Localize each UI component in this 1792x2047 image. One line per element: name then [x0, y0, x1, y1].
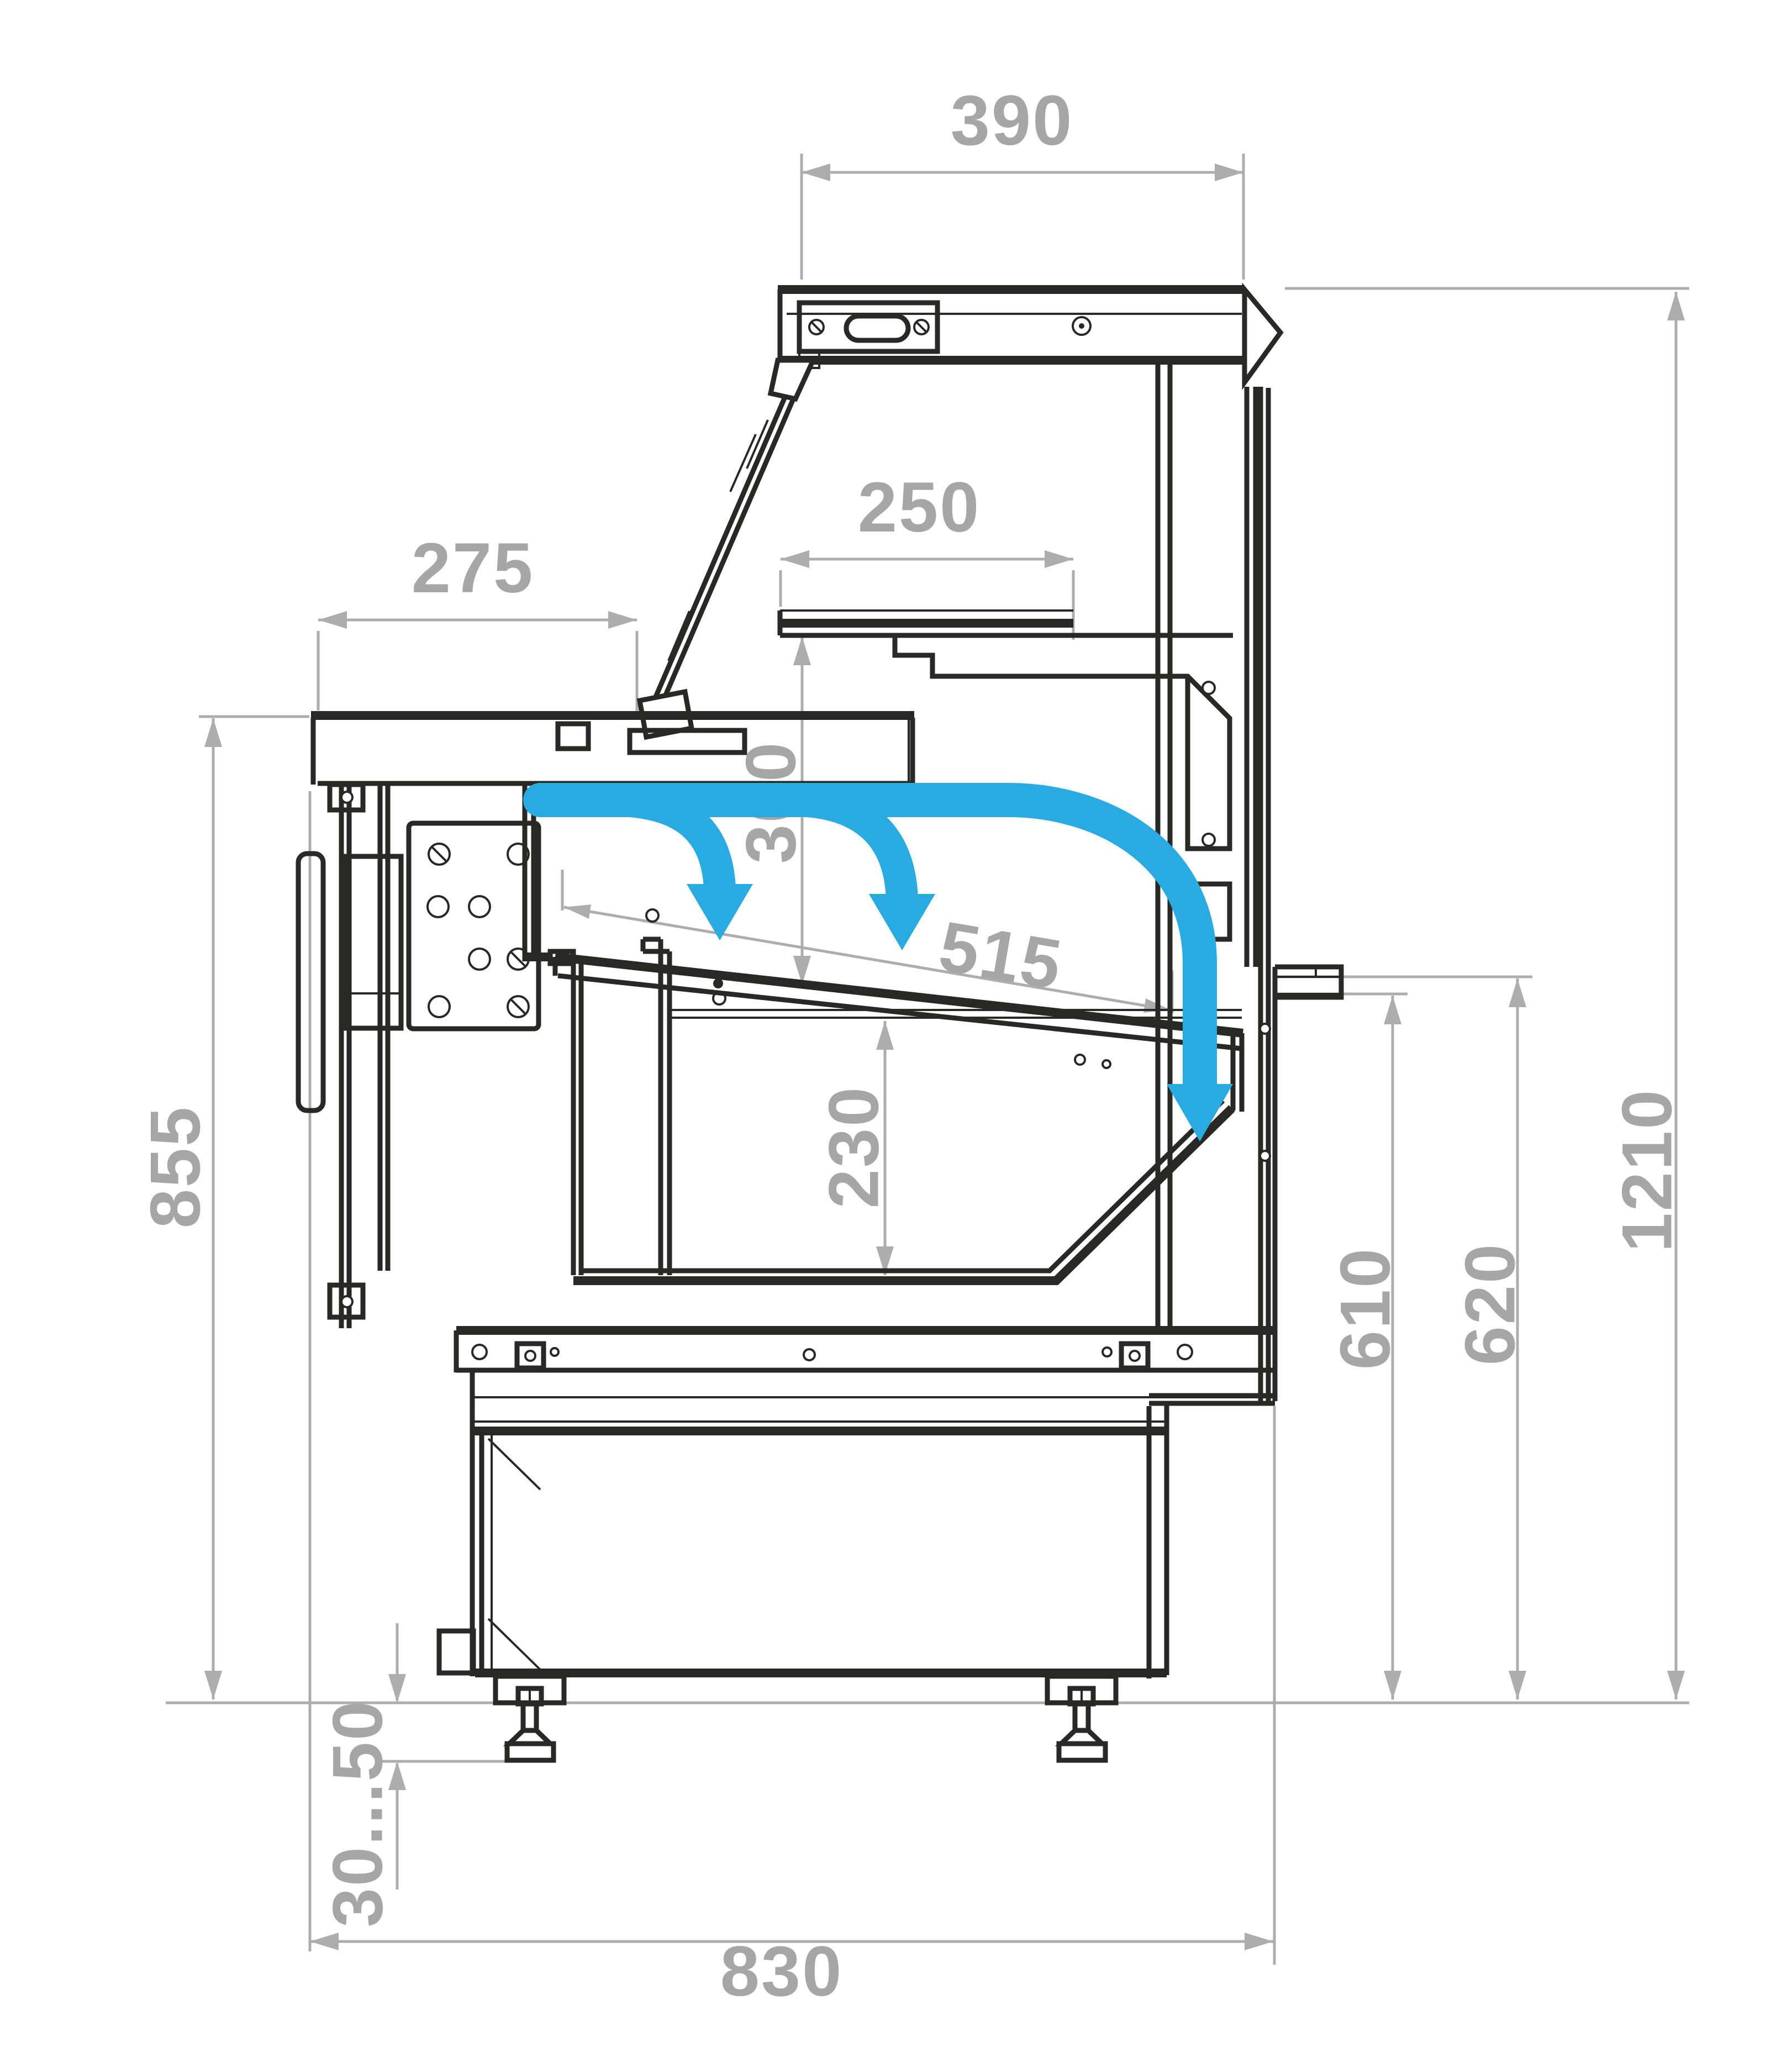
airflow-arrow-1 [687, 884, 753, 940]
dim-well-depth: 230 [815, 1021, 894, 1275]
airflow-branch-1 [630, 801, 720, 888]
dim-label-display-deck-depth: 515 [934, 907, 1068, 1005]
dim-counter-height: 855 [136, 717, 310, 1699]
dim-canopy-depth: 390 [802, 81, 1243, 280]
dim-label-counter-height: 855 [136, 1106, 215, 1229]
dim-label-shelf-depth: 250 [858, 468, 981, 547]
technical-drawing: 390 250 275 300 515 [0, 0, 1792, 2047]
canopy [778, 290, 1280, 382]
dim-rear-inner-height: 610 [1277, 994, 1408, 1699]
dim-label-canopy-depth: 390 [951, 81, 1074, 160]
front-counter [311, 715, 914, 790]
dim-label-well-depth: 230 [815, 1086, 894, 1209]
dimension-annotations: 390 250 275 300 515 [136, 81, 1690, 2011]
dim-label-rear-inner-height: 610 [1326, 1247, 1405, 1370]
drawing-canvas: 390 250 275 300 515 [0, 0, 1792, 2047]
adjustable-foot-front [496, 1676, 564, 1760]
dim-label-rear-outer-height: 620 [1451, 1243, 1530, 1366]
glass-front [630, 360, 813, 753]
dim-overall-depth: 830 [310, 791, 1274, 2011]
dim-label-overall-depth: 830 [720, 1932, 844, 2011]
dim-label-leg-adjust: 30...50 [319, 1699, 398, 1927]
base-cabinet [439, 1330, 1276, 1678]
perforated-panel [409, 823, 539, 1029]
dim-shelf-depth: 250 [781, 468, 1073, 640]
dim-label-counter-depth: 275 [412, 529, 535, 608]
front-panel-assembly [298, 785, 401, 1328]
air-deflector [558, 724, 588, 749]
dim-counter-depth: 275 [318, 529, 637, 714]
adjustable-foot-rear [1047, 1676, 1116, 1760]
dim-label-overall-height: 1210 [1608, 1088, 1687, 1253]
airflow-arrow-2 [869, 894, 935, 950]
cold-well [573, 1101, 1232, 1281]
